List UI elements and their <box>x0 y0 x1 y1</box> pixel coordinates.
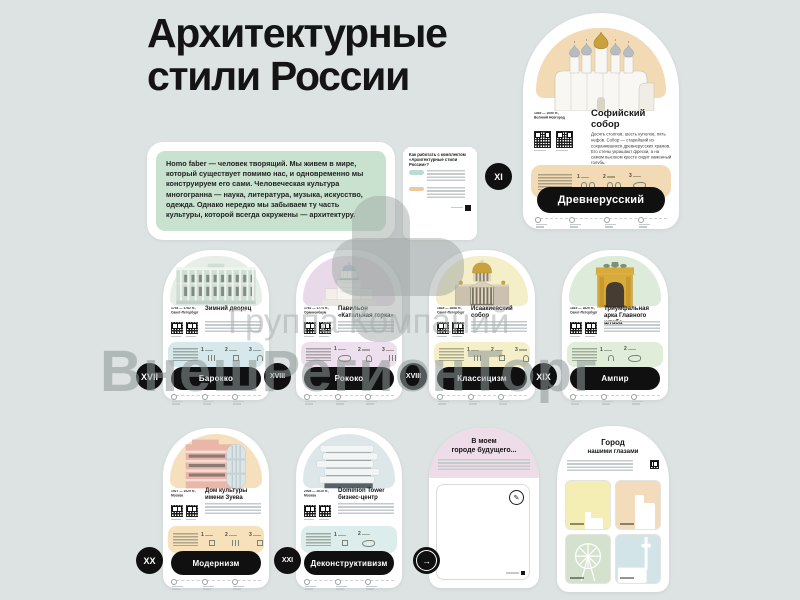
qr-code-block <box>319 322 331 337</box>
timeline-stop <box>335 579 341 585</box>
band-notes-placeholder <box>306 348 331 361</box>
qr-caption-placeholder <box>319 519 329 521</box>
page-title-line2: стили России <box>147 55 447 98</box>
timeline-stop <box>569 217 575 223</box>
qr-code <box>319 505 331 517</box>
qr-caption-placeholder <box>171 336 181 338</box>
timeline-stop <box>304 579 310 585</box>
century-badge-xix: XIX <box>530 363 557 390</box>
qr-caption-placeholder <box>437 336 447 338</box>
city-card-title-line2: нашими глазами <box>557 448 669 455</box>
page-title-line1: Архитектурные <box>147 12 447 55</box>
qr-code-block <box>556 131 573 151</box>
timeline-stop <box>604 217 610 223</box>
construction-dates: 1818 — 1858 гг.,Санкт-Петербург <box>437 307 472 316</box>
arch-icon <box>257 355 263 361</box>
qr-caption-placeholder <box>585 336 595 338</box>
qr-code <box>171 505 183 517</box>
timeline <box>304 395 394 406</box>
qr-code <box>319 322 331 334</box>
arrow-icon: → <box>416 550 437 571</box>
future-card-title: В моем городе будущего... <box>429 438 539 456</box>
house-silhouette <box>585 512 591 529</box>
style-card-modernizm: 1927 — 1929 гг.,Москва Дом культуры имен… <box>163 428 269 588</box>
building-illustration-st-isaacs <box>440 260 524 308</box>
building-silhouette <box>635 495 644 529</box>
timeline-stop <box>202 394 208 400</box>
style-pill-rokoko[interactable]: Рококо <box>304 367 394 390</box>
city-tile-yellow[interactable] <box>565 480 611 530</box>
building-name: Исаакиевский собор <box>471 306 529 320</box>
qr-code <box>186 322 198 334</box>
howto-qr-code <box>465 205 471 211</box>
qr-code <box>186 505 198 517</box>
timeline-stop <box>171 394 177 400</box>
howto-tag-2 <box>409 187 424 192</box>
poster-architectural-styles: Архитектурные стили России Homo faber — … <box>0 0 800 600</box>
century-badge-xi: XI <box>485 163 512 190</box>
qr-caption-placeholder <box>186 519 196 521</box>
form-icon <box>362 540 375 547</box>
qr-code-block <box>585 322 597 337</box>
columns-icon <box>474 355 482 361</box>
city-tiles-grid <box>565 480 661 584</box>
qr-caption-placeholder <box>534 150 546 152</box>
qr-code <box>570 322 582 334</box>
qr-caption-placeholder <box>452 336 462 338</box>
tower-icon <box>616 535 660 583</box>
timeline-stop <box>202 579 208 585</box>
style-features-band: 1 2 3 <box>301 342 397 367</box>
timeline-stop <box>171 579 177 585</box>
window-icon <box>499 355 505 361</box>
style-features-band: 1 2 <box>301 526 397 553</box>
timeline-stop <box>335 394 341 400</box>
description-placeholder <box>338 321 394 334</box>
qr-caption-placeholder <box>304 519 314 521</box>
style-card-ampir: 1819 — 1829 гг.,Санкт-Петербург Триумфал… <box>562 250 668 400</box>
band-notes-placeholder <box>439 348 464 361</box>
dome-icon <box>523 355 529 362</box>
qr-caption-placeholder <box>556 150 568 152</box>
tile-caption-placeholder <box>570 577 584 579</box>
dome-icon <box>366 355 372 362</box>
description-placeholder <box>471 321 527 334</box>
qr-code <box>171 322 183 334</box>
band-notes-placeholder <box>572 348 597 361</box>
qr-code <box>534 131 551 148</box>
howto-title: Как работать с комплектом «Архитектурные… <box>409 153 471 166</box>
style-pill-dekonstruktivizm[interactable]: Деконструктивизм <box>304 551 394 575</box>
tile-caption-placeholder <box>620 577 634 579</box>
timeline <box>171 395 261 406</box>
timeline-stop <box>570 394 576 400</box>
building-illustration-winter-palace <box>174 260 258 308</box>
timeline-stop <box>631 394 637 400</box>
building-name: Дом культуры имени Зуева <box>205 488 263 502</box>
sculpture-icon <box>628 355 641 362</box>
band-notes-placeholder <box>173 533 198 546</box>
timeline-stop <box>638 217 644 223</box>
description-placeholder <box>338 503 394 516</box>
century-badge-xx: XX <box>136 547 163 574</box>
timeline-stop <box>232 394 238 400</box>
style-pill-klassitsizm[interactable]: Классицизм <box>437 367 527 390</box>
future-city-card: В моем городе будущего... ✎ <box>429 428 539 588</box>
construction-dates: 2008 — 2015 гг.,Москва <box>304 490 339 499</box>
qr-code <box>437 322 449 334</box>
arch-icon <box>608 355 614 361</box>
building-name: Зимний дворец <box>205 306 263 313</box>
construction-dates: 1819 — 1829 гг.,Санкт-Петербург <box>570 307 605 316</box>
construction-dates: 1927 — 1929 гг.,Москва <box>171 490 206 499</box>
style-features-band: 1 2 3 <box>168 526 264 553</box>
building-name: Софийский собор <box>591 109 645 130</box>
timeline <box>437 395 527 406</box>
century-badge-xvii: XVII <box>136 363 163 390</box>
qr-caption-placeholder <box>319 336 329 338</box>
howto-text-placeholder <box>427 187 465 200</box>
building-illustration-katalnaya-gorka <box>307 260 391 308</box>
intro-card: Homo faber — человек творящий. Мы живем … <box>147 142 395 240</box>
window-icon <box>233 355 239 361</box>
style-features-band: 1 2 3 <box>434 342 530 367</box>
qr-caption-placeholder <box>570 336 580 338</box>
style-features-band: 1 2 <box>567 342 663 367</box>
qr-code <box>452 322 464 334</box>
timeline-stop <box>365 579 371 585</box>
qr-code-block <box>186 322 198 337</box>
building-illustration-dominion-tower <box>307 438 391 490</box>
qr-caption-placeholder <box>186 336 196 338</box>
intro-text: Homo faber — человек творящий. Мы живем … <box>156 151 386 231</box>
building-illustration-zuev-house <box>174 438 258 490</box>
qr-code-block <box>186 505 198 520</box>
style-card-barokko: 1754 — 1762 гг.,Санкт-Петербург Зимний д… <box>163 250 269 400</box>
timeline <box>535 218 667 229</box>
qr-caption-placeholder <box>304 336 314 338</box>
howto-card: Как работать с комплектом «Архитектурные… <box>403 147 477 240</box>
canvas-qr-code <box>521 571 526 576</box>
style-card-drevnerusskiy: 1045 — 1050 гг., Великий Новгород Софийс… <box>523 13 679 229</box>
city-eyes-card: Город нашими глазами <box>557 426 669 592</box>
style-card-rokoko: 1762 — 1774 гг.,Ораниенбаум Павильон «Ка… <box>296 250 402 400</box>
style-pill-drevnerusskiy[interactable]: Древнерусский <box>537 187 665 213</box>
city-tile-green[interactable] <box>565 534 611 584</box>
next-arrow-badge[interactable]: → <box>413 547 440 574</box>
city-card-qr-code <box>650 460 659 469</box>
slab-icon <box>342 540 348 546</box>
qr-code-block <box>171 322 183 337</box>
future-card-prompt-placeholder <box>438 459 530 472</box>
timeline-stop <box>232 579 238 585</box>
howto-caption-placeholder <box>451 207 463 209</box>
pencil-icon: ✎ <box>509 490 524 505</box>
tile-caption-placeholder <box>620 523 634 525</box>
construction-dates: 1045 — 1050 гг., Великий Новгород <box>534 112 569 121</box>
timeline-stop <box>498 394 504 400</box>
building-illustration-sophia-cathedral <box>541 31 661 111</box>
qr-code-block <box>171 505 183 520</box>
howto-tag-1 <box>409 170 424 175</box>
qr-code-block <box>452 322 464 337</box>
description-placeholder <box>604 321 660 334</box>
window-icon <box>209 540 215 546</box>
building-name: Dominion Tower бизнес-центр <box>338 488 396 502</box>
page-title: Архитектурные стили России <box>147 12 447 97</box>
columns-icon <box>389 355 397 361</box>
description-placeholder <box>205 503 261 516</box>
timeline-stop <box>365 394 371 400</box>
ferris-wheel-icon <box>566 535 610 583</box>
timeline <box>304 580 394 591</box>
volume-icon <box>257 540 263 546</box>
qr-code <box>304 322 316 334</box>
qr-caption-placeholder <box>171 519 181 521</box>
glazing-icon <box>232 540 240 546</box>
qr-code <box>585 322 597 334</box>
columns-icon <box>208 355 216 361</box>
style-card-dekonstruktivizm: 2008 — 2015 гг.,Москва Dominion Tower би… <box>296 428 402 588</box>
style-card-klassitsizm: 1818 — 1858 гг.,Санкт-Петербург Исаакиев… <box>429 250 535 400</box>
building-description: Десять столпов, шесть куполов, пять нефо… <box>591 132 673 164</box>
century-badge-xviii-1: XVIII <box>264 363 291 390</box>
timeline-stop <box>535 217 541 223</box>
style-pill-modernizm[interactable]: Модернизм <box>171 551 261 575</box>
timeline <box>171 580 261 591</box>
howto-section-online <box>409 187 471 200</box>
qr-code <box>556 131 573 148</box>
timeline-stop <box>601 394 607 400</box>
building-illustration-triumphal-arch <box>573 260 657 308</box>
construction-dates: 1762 — 1774 гг.,Ораниенбаум <box>304 307 339 316</box>
qr-code-block <box>437 322 449 337</box>
city-tile-peach[interactable] <box>615 480 661 530</box>
construction-dates: 1754 — 1762 гг.,Санкт-Петербург <box>171 307 206 316</box>
building-name: Павильон «Катальная горка» <box>338 306 396 320</box>
timeline-stop <box>468 394 474 400</box>
style-pill-ampir[interactable]: Ампир <box>570 367 660 390</box>
timeline-stop <box>437 394 443 400</box>
description-placeholder <box>205 321 261 334</box>
city-tile-blue[interactable] <box>615 534 661 584</box>
qr-code-block <box>319 505 331 520</box>
qr-code <box>304 505 316 517</box>
century-badge-xxi: XXI <box>274 547 301 574</box>
drawing-area[interactable]: ✎ <box>436 484 530 580</box>
qr-code-block <box>534 131 551 151</box>
qr-code-block <box>304 505 316 520</box>
timeline <box>570 395 660 406</box>
band-notes-placeholder <box>173 348 198 361</box>
century-badge-xviii-2: XVIII <box>400 363 427 390</box>
band-notes-placeholder <box>306 533 331 546</box>
style-pill-barokko[interactable]: Барокко <box>171 367 261 390</box>
city-card-text-placeholder <box>567 460 633 473</box>
tile-caption-placeholder <box>570 523 584 525</box>
qr-code-block <box>304 322 316 337</box>
qr-code-block <box>570 322 582 337</box>
howto-text-placeholder <box>427 170 465 183</box>
canvas-caption-placeholder <box>506 572 519 574</box>
ornament-icon <box>338 355 351 362</box>
city-card-title-line1: Город <box>557 438 669 447</box>
howto-section-offline <box>409 170 471 183</box>
style-features-band: 1 2 3 <box>168 342 264 367</box>
timeline-stop <box>304 394 310 400</box>
